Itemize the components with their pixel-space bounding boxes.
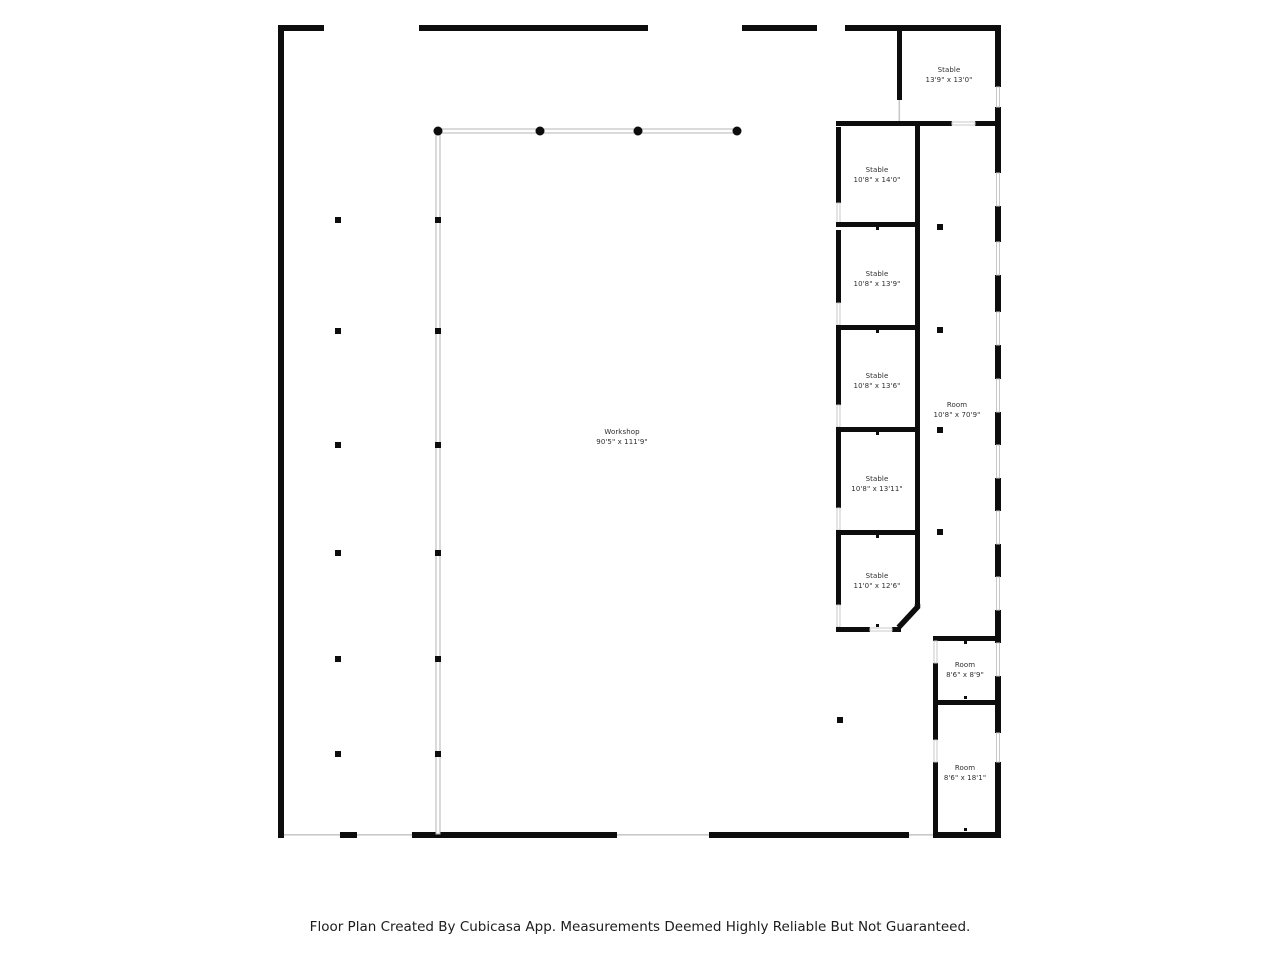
room-label-room-small: Room 8'6" x 8'9" (900, 660, 1030, 680)
room-dimensions: 8'6" x 8'9" (900, 670, 1030, 680)
room-name: Stable (884, 65, 1014, 75)
room-name: Room (900, 660, 1030, 670)
interior-thin-walls (436, 129, 737, 834)
room-label-room-long: Room 8'6" x 18'1" (900, 763, 1030, 783)
caption: Floor Plan Created By Cubicasa App. Meas… (310, 919, 971, 935)
room-dimensions: 10'8" x 13'9" (812, 279, 942, 289)
room-dimensions: 10'8" x 13'11" (812, 484, 942, 494)
room-label-stable-top-right: Stable 13'9" x 13'0" (884, 65, 1014, 85)
room-dimensions: 10'8" x 14'0" (812, 175, 942, 185)
room-label-stable-1: Stable 10'8" x 14'0" (812, 165, 942, 185)
room-name: Stable (812, 269, 942, 279)
room-label-stable-2: Stable 10'8" x 13'9" (812, 269, 942, 289)
room-name: Stable (812, 165, 942, 175)
room-label-room-right: Room 10'8" x 70'9" (892, 400, 1022, 420)
room-dimensions: 13'9" x 13'0" (884, 75, 1014, 85)
room-name: Stable (812, 371, 942, 381)
floor-plan-page: Stable 13'9" x 13'0" Stable 10'8" x 14'0… (0, 0, 1280, 960)
room-label-workshop: Workshop 90'5" x 111'9" (557, 427, 687, 447)
room-name: Stable (812, 474, 942, 484)
room-label-stable-3: Stable 10'8" x 13'6" (812, 371, 942, 391)
room-label-stable-5: Stable 11'0" x 12'6" (812, 571, 942, 591)
room-dimensions: 8'6" x 18'1" (900, 773, 1030, 783)
room-dimensions: 90'5" x 111'9" (557, 437, 687, 447)
room-label-stable-4: Stable 10'8" x 13'11" (812, 474, 942, 494)
room-dimensions: 10'8" x 70'9" (892, 410, 1022, 420)
room-name: Workshop (557, 427, 687, 437)
room-name: Stable (812, 571, 942, 581)
room-dimensions: 11'0" x 12'6" (812, 581, 942, 591)
room-name: Room (892, 400, 1022, 410)
room-name: Room (900, 763, 1030, 773)
room-dimensions: 10'8" x 13'6" (812, 381, 942, 391)
floor-plan-drawing (0, 0, 1280, 960)
